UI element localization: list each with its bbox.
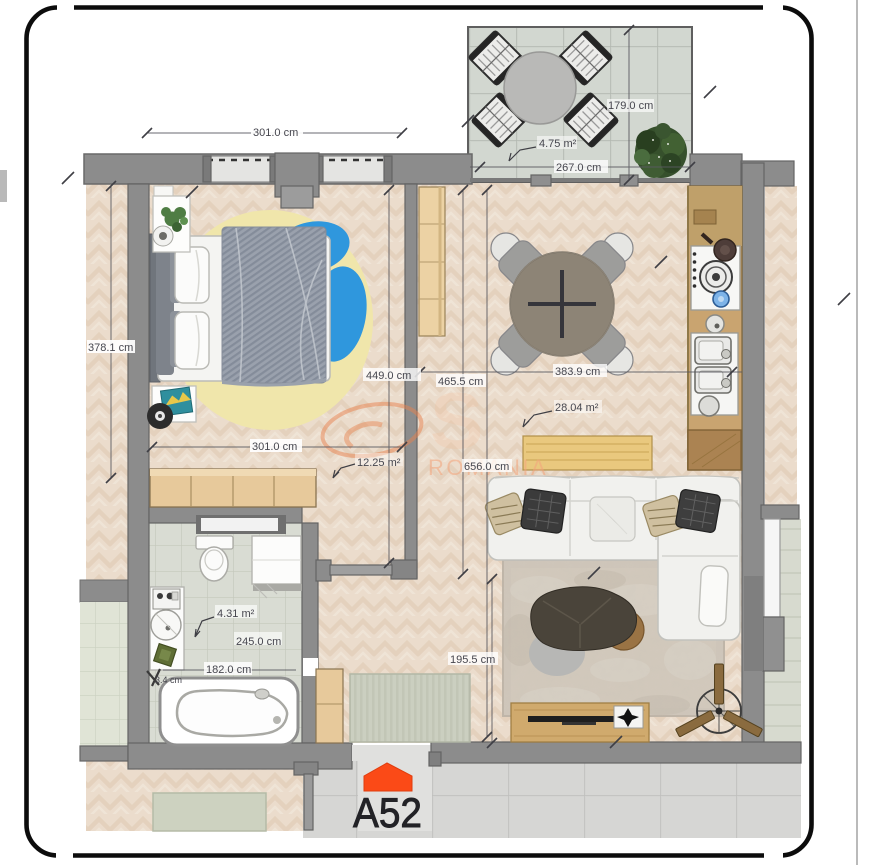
svg-text:182.0 cm: 182.0 cm (206, 664, 251, 676)
svg-text:179.0 cm: 179.0 cm (608, 100, 653, 112)
svg-text:A52: A52 (353, 789, 422, 836)
svg-text:301.0 cm: 301.0 cm (252, 441, 297, 453)
svg-text:267.0 cm: 267.0 cm (556, 162, 601, 174)
svg-text:S: S (430, 376, 483, 465)
svg-text:28.04 m²: 28.04 m² (555, 402, 599, 414)
svg-text:245.0 cm: 245.0 cm (236, 636, 281, 648)
svg-text:449.0 cm: 449.0 cm (366, 370, 411, 382)
svg-text:465.5 cm: 465.5 cm (438, 376, 483, 388)
svg-text:3.4 cm: 3.4 cm (155, 675, 182, 685)
svg-text:4.31 m²: 4.31 m² (217, 608, 255, 620)
svg-text:4.75 m²: 4.75 m² (539, 138, 577, 150)
svg-text:301.0 cm: 301.0 cm (253, 127, 298, 139)
svg-text:195.5 cm: 195.5 cm (450, 654, 495, 666)
svg-text:12.25 m²: 12.25 m² (357, 457, 401, 469)
svg-text:656.0 cm: 656.0 cm (464, 461, 509, 473)
svg-text:383.9 cm: 383.9 cm (555, 366, 600, 378)
svg-text:378.1 cm: 378.1 cm (88, 342, 133, 354)
